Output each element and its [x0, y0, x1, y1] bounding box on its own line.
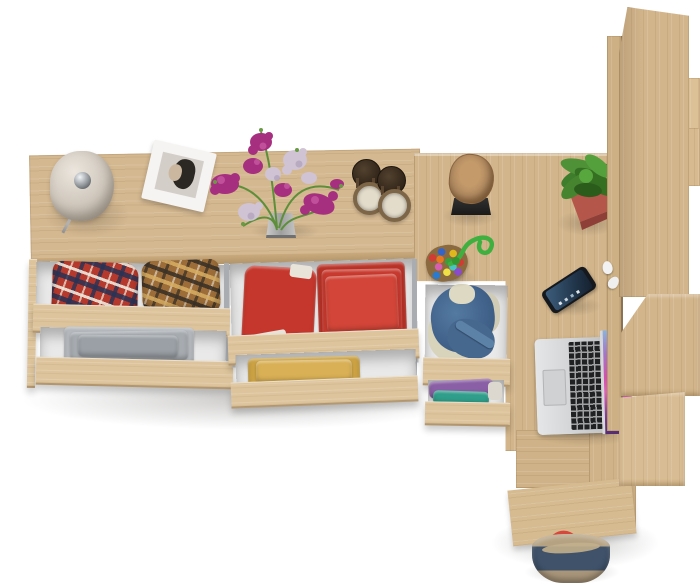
laptop-trackpad [542, 369, 566, 406]
charm-cord-knot [452, 257, 460, 265]
drawer-front-purple [425, 401, 510, 426]
flower-bouquet [203, 120, 351, 238]
scene-top-view [0, 0, 700, 583]
shelf-board-upper [621, 294, 700, 396]
drawer-unit-middle [226, 253, 422, 405]
lamp-chrome-cap [74, 172, 91, 189]
shelf-board-lower [619, 392, 685, 486]
shelf-column [619, 7, 689, 297]
smartphone-app-icons [558, 301, 562, 305]
grey-trousers-top [78, 335, 178, 358]
tote-bag [532, 534, 610, 583]
portrait-photo [154, 152, 203, 198]
red-stack-top [325, 273, 399, 332]
earbud-left [601, 260, 613, 275]
drawer-front-grey [36, 357, 234, 390]
tote-bag-flap [542, 541, 601, 555]
lantern-candle-2 [378, 189, 411, 222]
laptop-body [534, 337, 607, 435]
drawer-unit-narrow [419, 278, 514, 426]
charm-cord [446, 224, 502, 268]
laptop-keyboard [568, 341, 603, 430]
earbuds [598, 260, 628, 297]
white-cloth-corner [488, 382, 502, 400]
drawer-unit-left [26, 255, 236, 390]
earbud-right [606, 274, 622, 290]
